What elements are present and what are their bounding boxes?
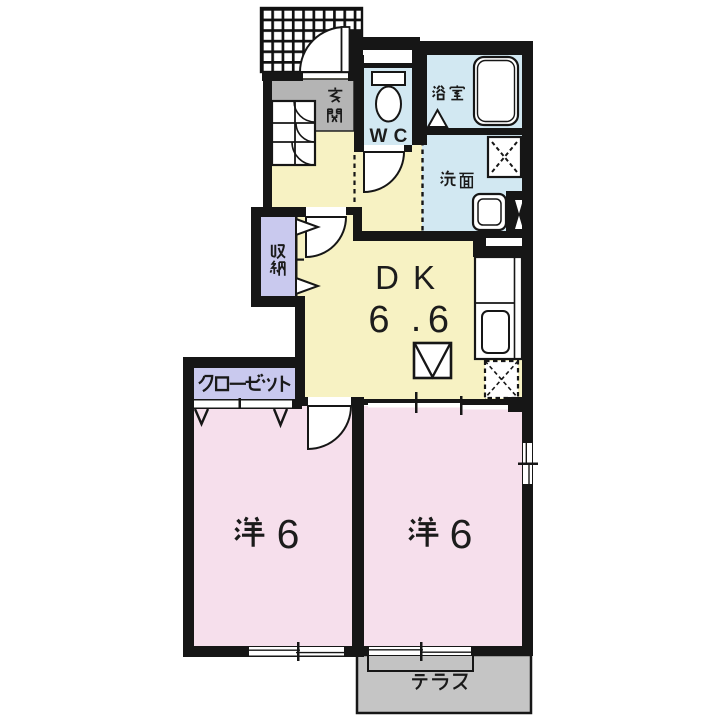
svg-text:C: C	[394, 126, 408, 147]
svg-text:6: 6	[277, 511, 300, 557]
svg-text:K: K	[413, 259, 435, 296]
svg-text:.: .	[411, 298, 422, 340]
svg-text:6: 6	[368, 299, 389, 341]
svg-text:D: D	[375, 259, 399, 296]
svg-text:W: W	[370, 126, 388, 147]
svg-text:6: 6	[450, 511, 473, 557]
svg-text:6: 6	[428, 299, 449, 341]
